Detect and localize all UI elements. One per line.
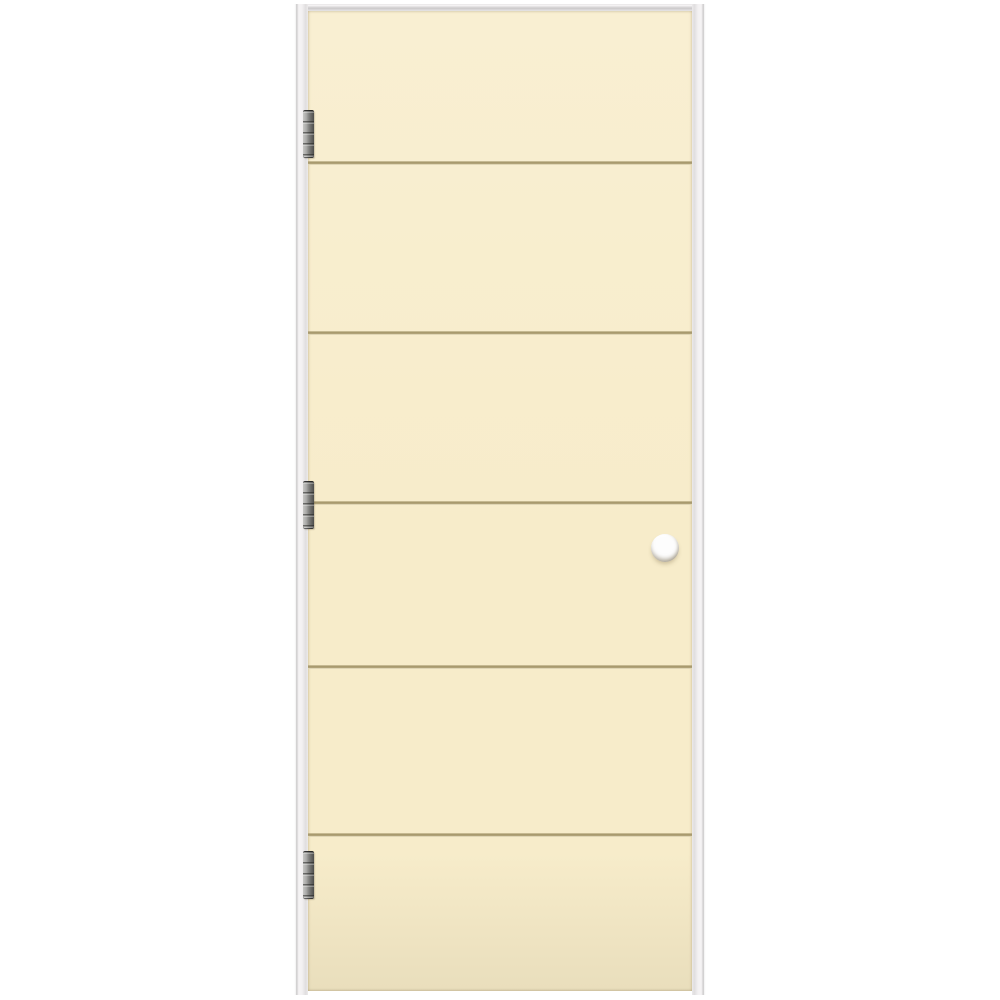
door-hinge <box>303 481 314 529</box>
door-hinge <box>303 110 314 158</box>
door-slab <box>308 11 692 991</box>
door-groove <box>308 331 692 335</box>
door-groove <box>308 161 692 165</box>
door-groove <box>308 665 692 669</box>
door-groove <box>308 833 692 837</box>
door-hinge <box>303 851 314 899</box>
door-groove <box>308 501 692 505</box>
door-product-photo <box>0 0 1000 1000</box>
door-knob-bore-hole <box>651 534 679 562</box>
door-frame-right-jamb <box>692 4 706 995</box>
